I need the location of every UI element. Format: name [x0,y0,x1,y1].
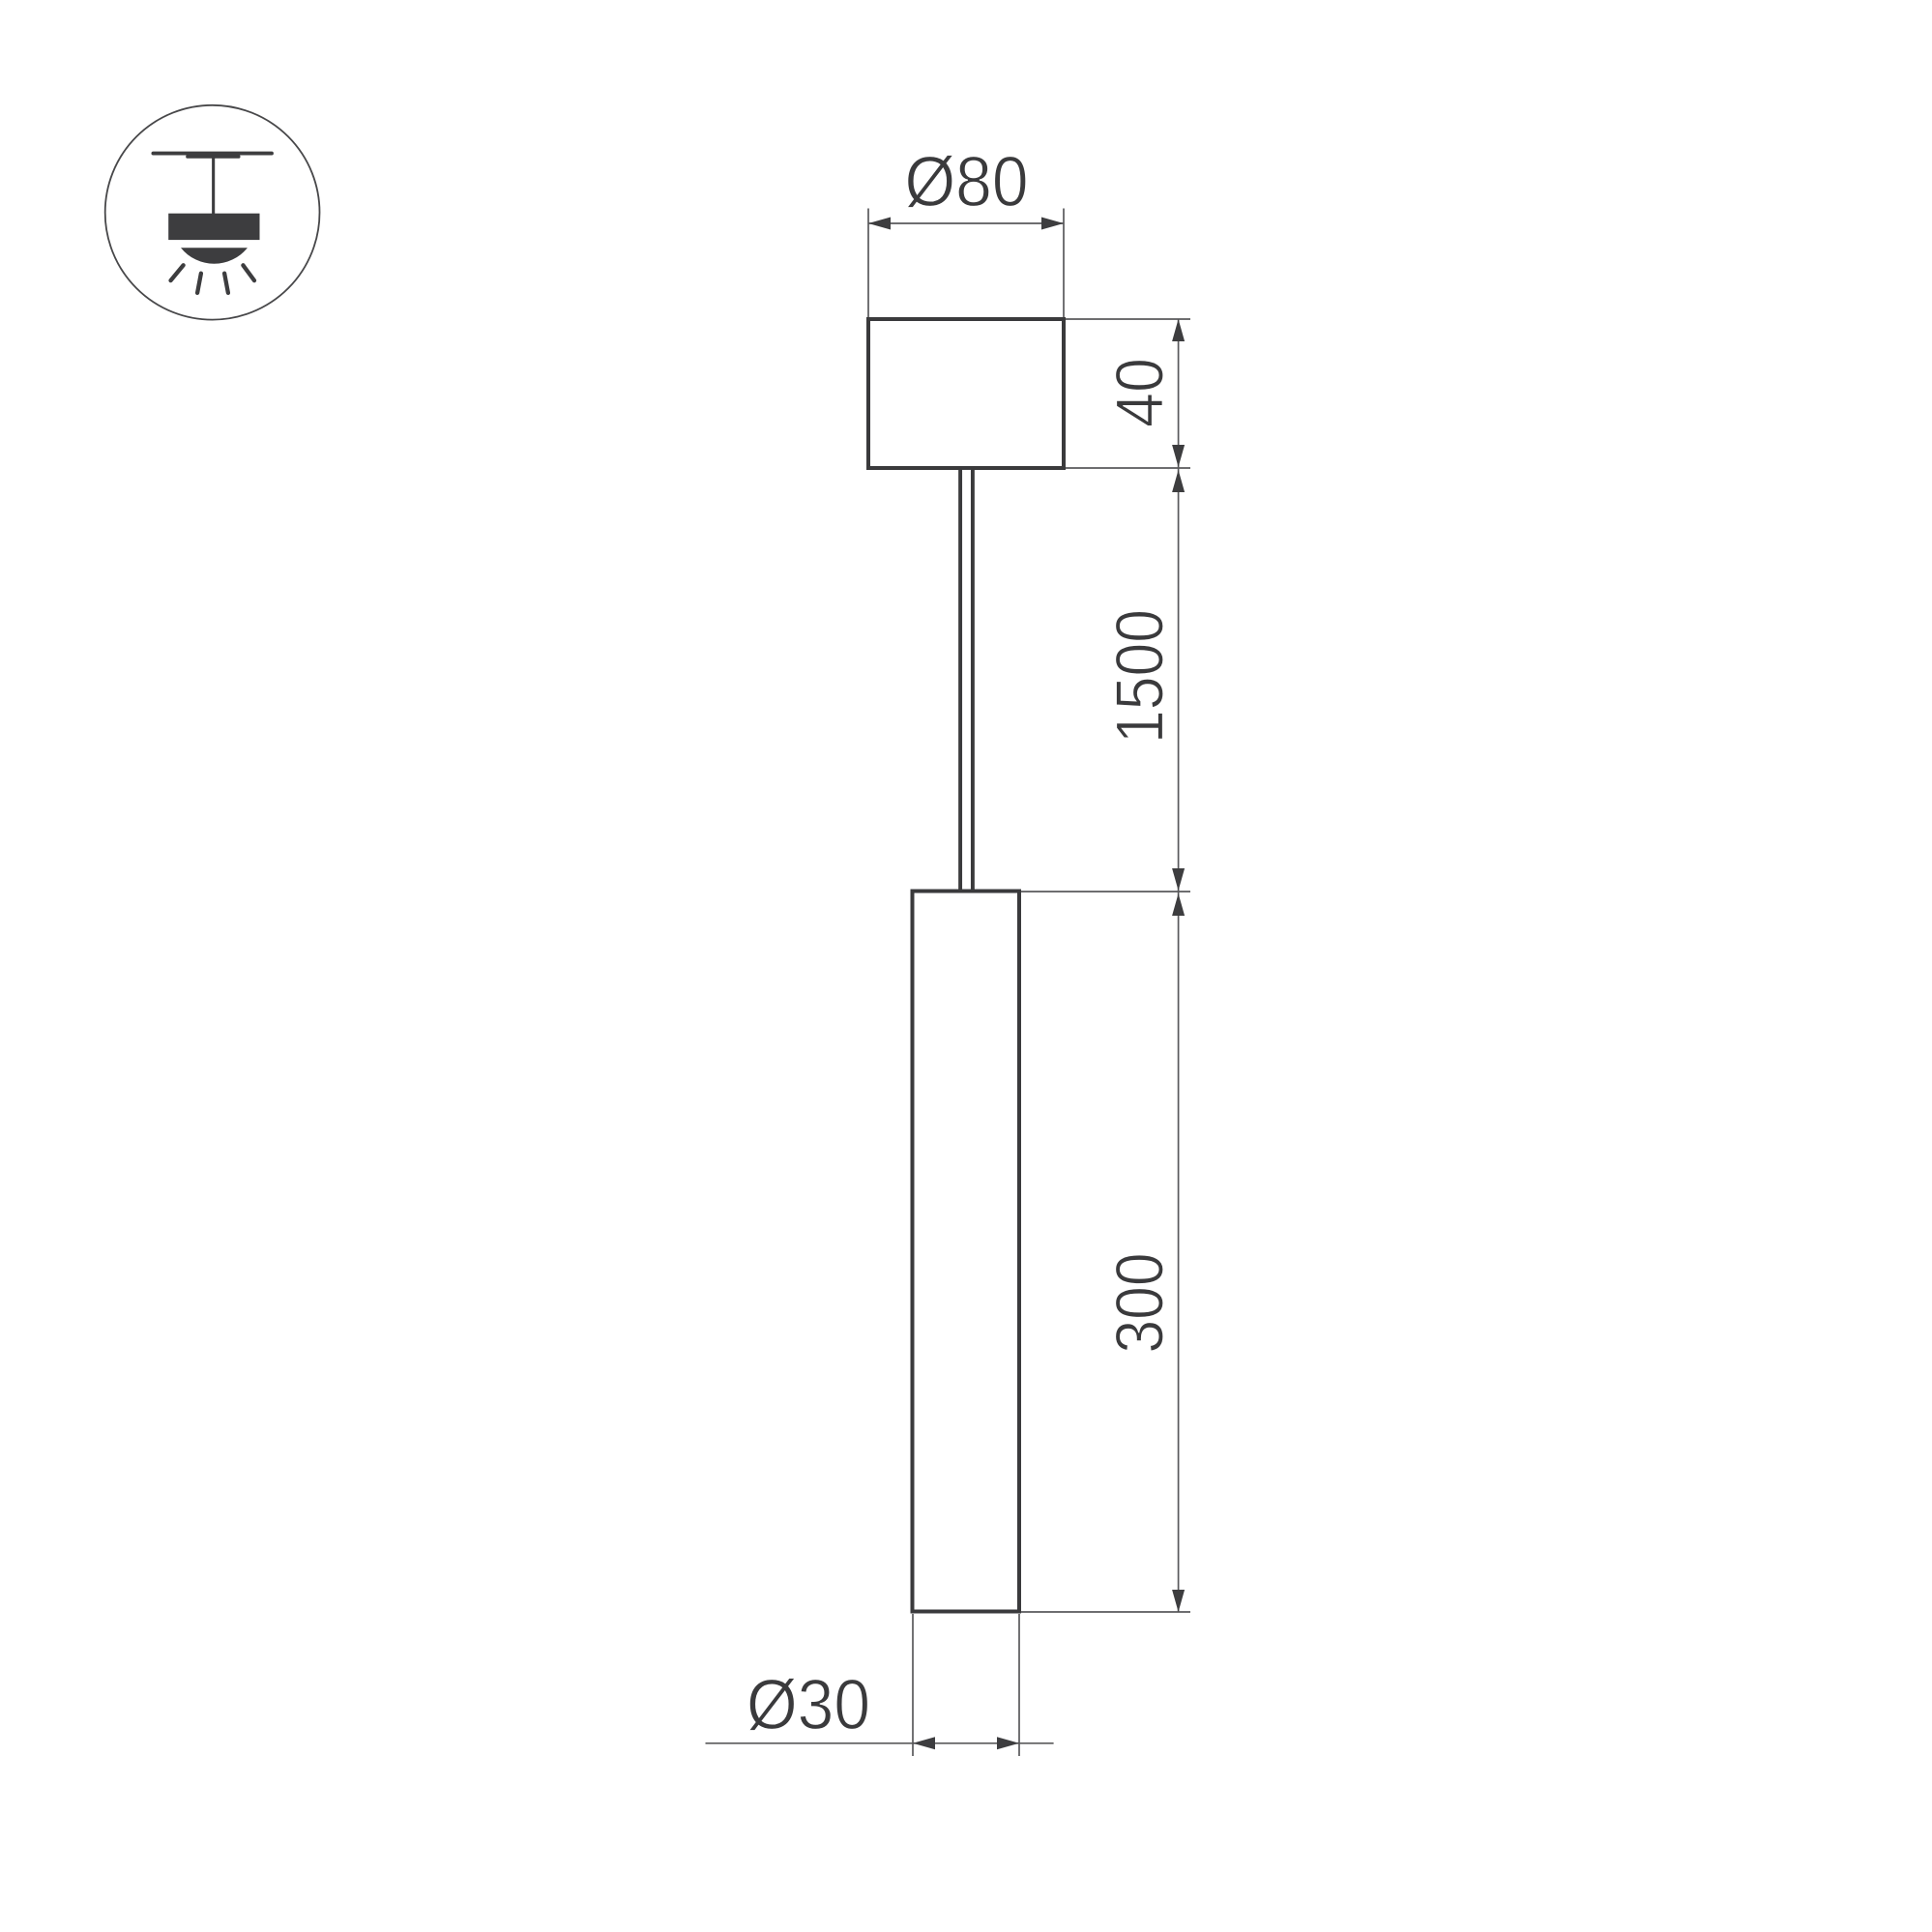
svg-text:40: 40 [1102,358,1178,427]
svg-text:1500: 1500 [1102,609,1178,744]
svg-text:300: 300 [1102,1253,1178,1354]
svg-text:Ø80: Ø80 [905,143,1029,221]
svg-text:Ø30: Ø30 [746,1666,870,1744]
